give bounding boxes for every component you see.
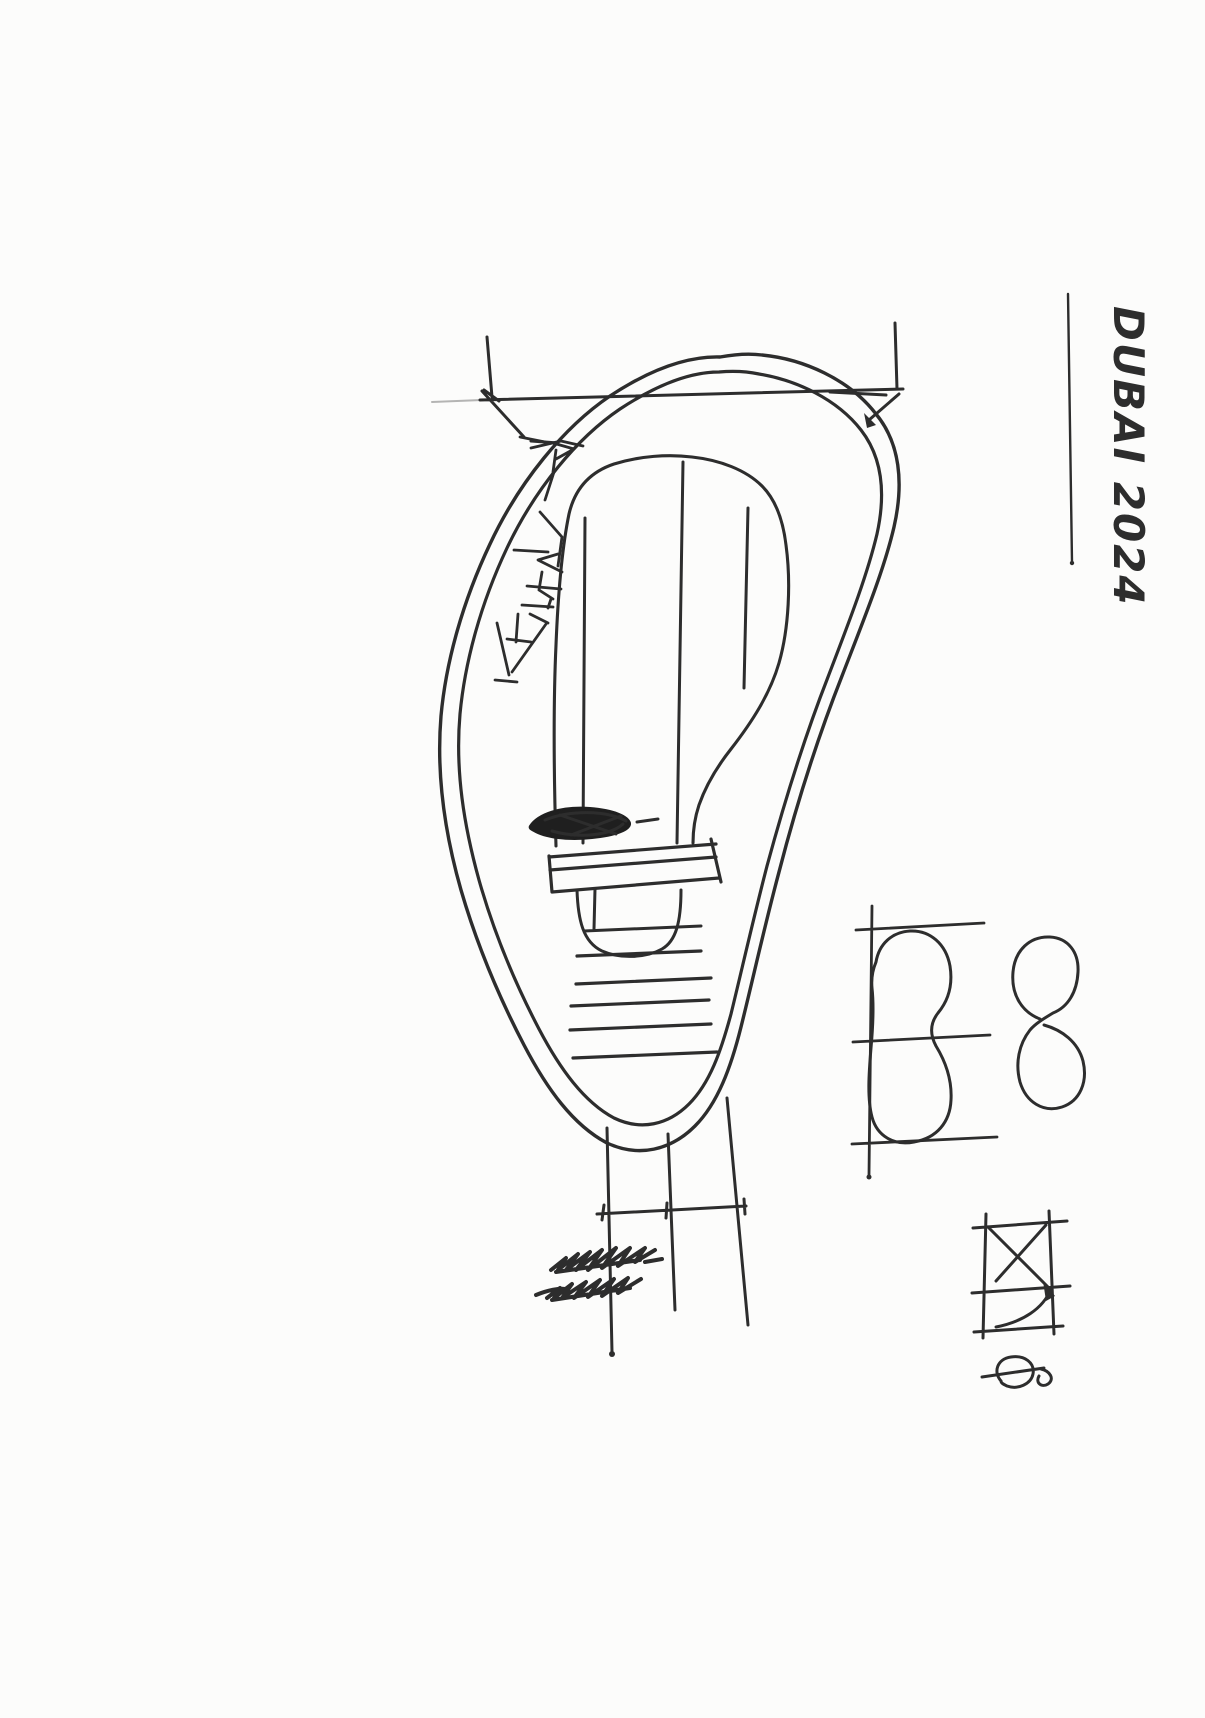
inner-bulb-outline [554,456,789,846]
annotation-underline [1068,294,1072,562]
phi-symbol-sketch [982,1357,1051,1388]
peanut-guide-lines [852,906,997,1175]
bulb-outline-outer-stroke [440,354,899,1150]
annotation-underline-end-dot [1070,561,1074,565]
thread-lines [570,951,717,1058]
collar-bar [549,839,721,892]
inner-bulb-vertical-lines [583,462,748,843]
figure-eight-outline [1013,937,1085,1109]
sketch-canvas: DUBAI 2024 [0,0,1205,1718]
dimension-leader-left [432,337,903,443]
figure-eight-sketch [1013,937,1085,1109]
annotation-text: DUBAI 2024 [1104,306,1153,607]
stem-hatch-scribbles [536,1248,662,1300]
thread-line-strokes [570,951,717,1058]
filled-scribble-blob [530,808,658,839]
dimension-leader-left-faint-extension [432,400,482,402]
collar-bar-lines [549,839,721,892]
u-stem [577,889,701,956]
inner-bulb-stroke [554,456,789,846]
dimension-leader-right [830,323,899,428]
u-stem-strokes [577,889,701,956]
base-stem [597,1098,748,1357]
base-stem-lines [597,1098,748,1352]
stem-hatch-band-1 [551,1248,662,1272]
dimension-leader-right-lines [830,323,899,420]
crossed-square-sketch [972,1211,1070,1338]
stem-hatch-band-2 [536,1278,641,1300]
staircase-hatch-strokes [495,437,583,682]
crossed-square-lines [972,1211,1070,1338]
peanut-sketch [852,906,997,1180]
annotation-block: DUBAI 2024 [1068,294,1153,607]
bulb-outline-inner-stroke [459,371,882,1124]
phi-symbol-strokes [982,1357,1051,1388]
stem-line-end-dot [609,1351,615,1357]
bulb-outer-outline [440,354,899,1150]
scanned-sketch-page: DUBAI 2024 [0,0,1205,1718]
peanut-guide-end-dot [867,1175,872,1180]
dimension-leader-left-lines [480,337,903,443]
staircase-hatch-scribble [495,437,583,682]
